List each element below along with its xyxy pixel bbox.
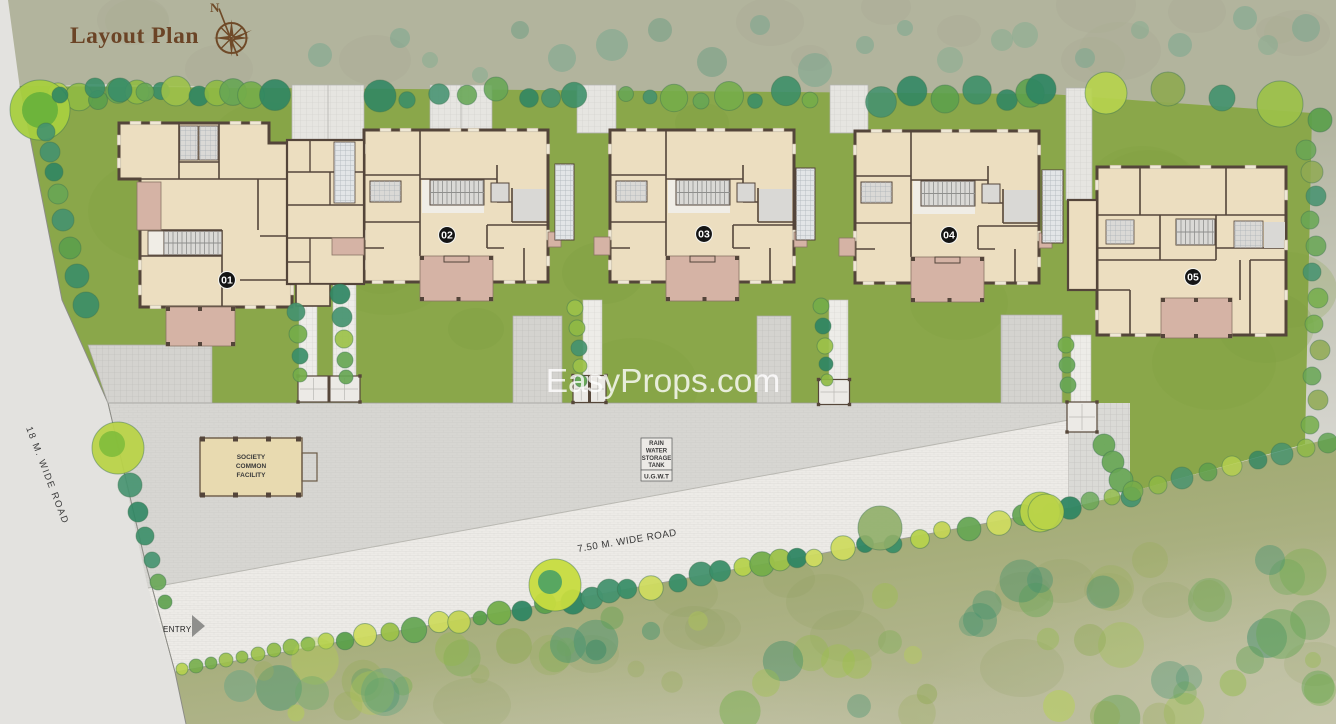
svg-text:FACILITY: FACILITY	[237, 472, 267, 479]
svg-text:RAIN: RAIN	[649, 441, 664, 447]
svg-text:01: 01	[221, 275, 233, 287]
svg-text:Layout Plan: Layout Plan	[70, 23, 199, 49]
svg-text:TANK: TANK	[648, 463, 665, 469]
svg-text:ENTRY: ENTRY	[163, 625, 192, 634]
svg-text:05: 05	[1187, 272, 1199, 284]
svg-text:02: 02	[441, 230, 453, 242]
svg-text:WATER: WATER	[646, 448, 668, 454]
svg-text:STORAGE: STORAGE	[642, 456, 672, 462]
svg-text:04: 04	[943, 230, 955, 242]
svg-text:SOCIETY: SOCIETY	[237, 454, 266, 461]
svg-text:COMMON: COMMON	[236, 463, 267, 470]
svg-text:U.G.W.T: U.G.W.T	[644, 474, 669, 481]
svg-text:03: 03	[698, 229, 710, 241]
svg-text:N: N	[210, 0, 220, 15]
svg-text:EasyProps.com: EasyProps.com	[546, 363, 781, 400]
